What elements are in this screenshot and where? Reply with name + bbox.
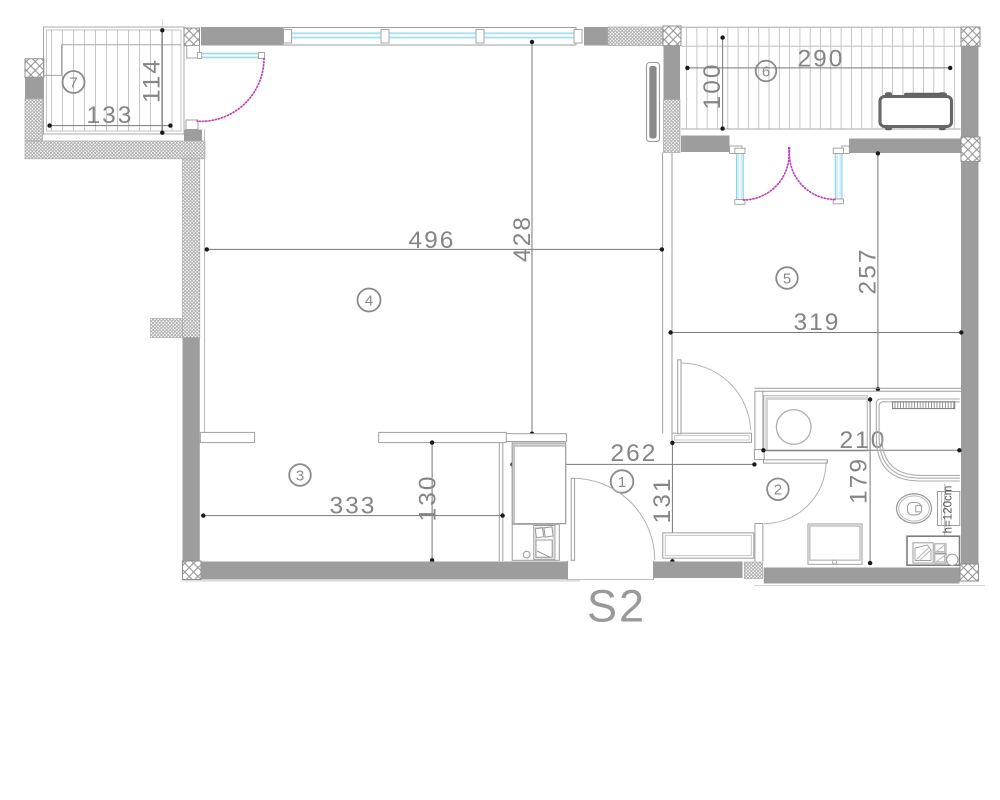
svg-text:290: 290 bbox=[798, 46, 845, 73]
svg-text:5: 5 bbox=[783, 270, 791, 287]
svg-text:333: 333 bbox=[330, 493, 377, 520]
svg-text:7: 7 bbox=[69, 74, 77, 91]
svg-text:100: 100 bbox=[699, 63, 726, 110]
svg-text:2: 2 bbox=[774, 482, 782, 499]
svg-text:1: 1 bbox=[618, 474, 626, 491]
svg-text:131: 131 bbox=[649, 477, 676, 524]
svg-text:257: 257 bbox=[855, 248, 882, 295]
svg-text:179: 179 bbox=[846, 457, 873, 504]
svg-text:S2: S2 bbox=[587, 581, 646, 632]
svg-text:4: 4 bbox=[365, 292, 373, 309]
svg-text:6: 6 bbox=[762, 63, 770, 80]
svg-text:114: 114 bbox=[139, 58, 166, 103]
svg-text:133: 133 bbox=[87, 102, 134, 129]
svg-text:3: 3 bbox=[296, 467, 304, 484]
svg-text:319: 319 bbox=[794, 309, 841, 336]
svg-text:496: 496 bbox=[409, 227, 456, 254]
svg-text:130: 130 bbox=[415, 475, 442, 522]
svg-text:262: 262 bbox=[611, 440, 658, 467]
svg-text:h=120cm: h=120cm bbox=[943, 486, 955, 534]
svg-text:428: 428 bbox=[509, 215, 536, 262]
